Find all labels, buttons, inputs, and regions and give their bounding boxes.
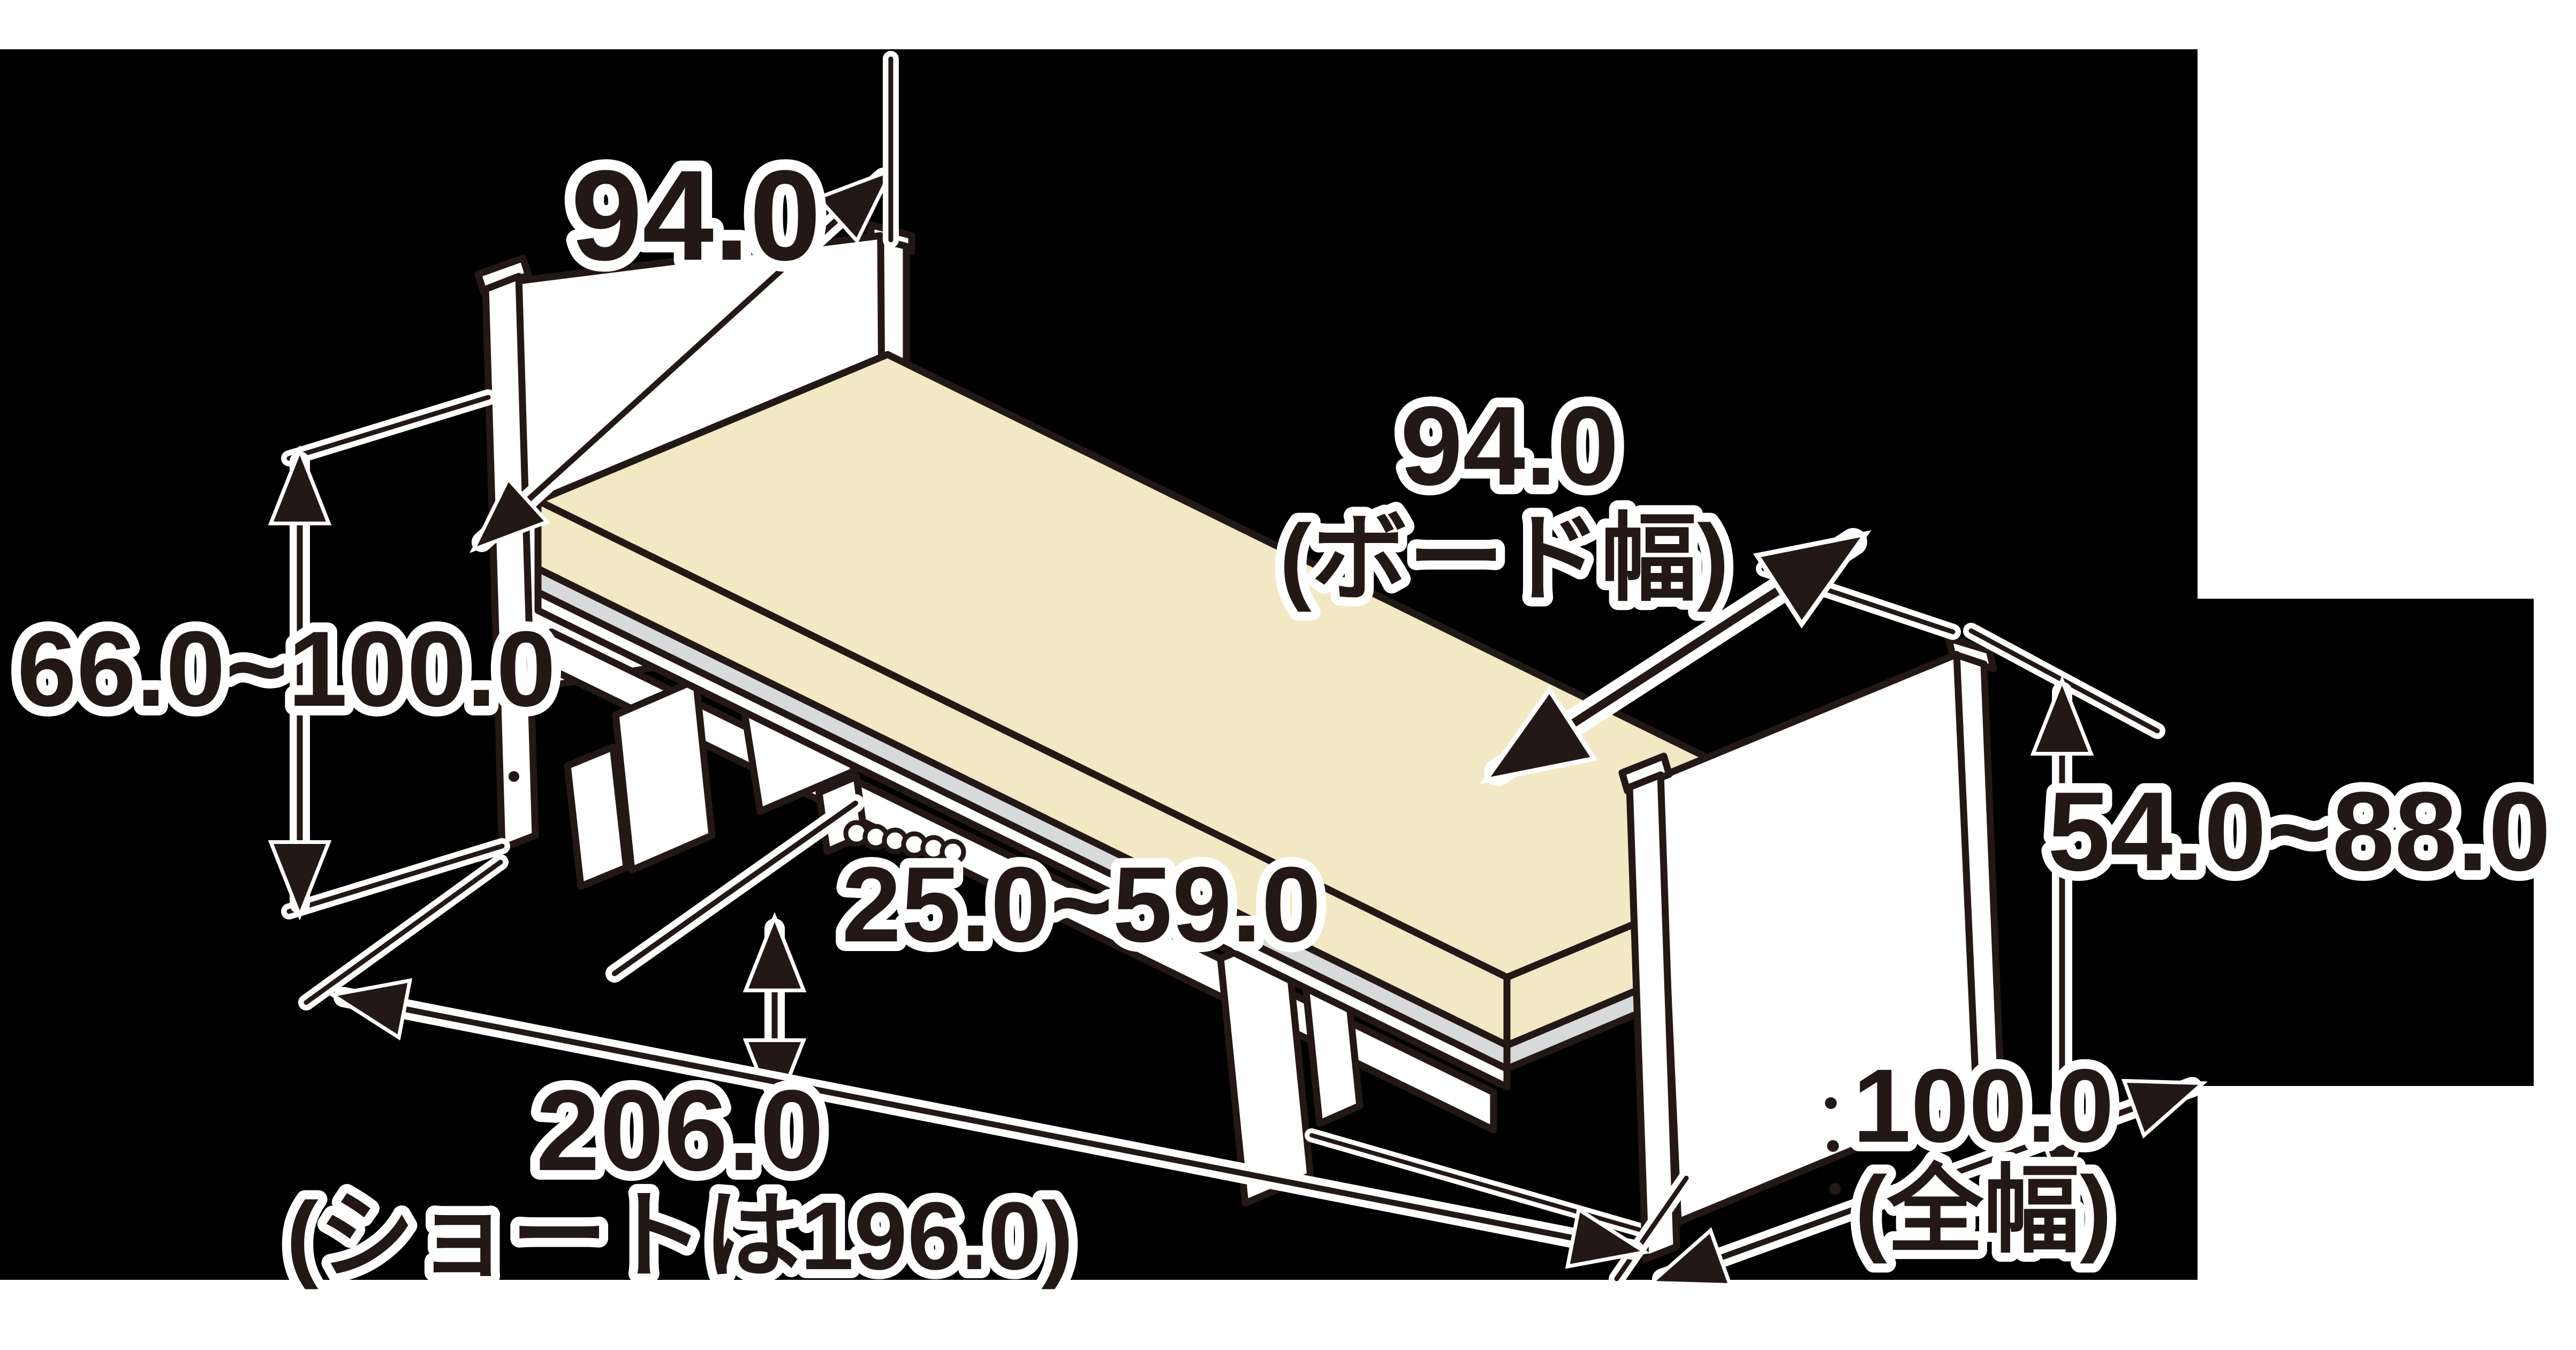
label-headboard-width: 94.0 bbox=[571, 144, 821, 287]
bed-dimension-diagram: 94.0 66.0~100.0 94.0 (ボード幅) 25.0~59.0 54… bbox=[0, 0, 2576, 1350]
label-overall-width-value: 100.0 bbox=[1853, 1047, 2114, 1164]
diagram-stage: 94.0 66.0~100.0 94.0 (ボード幅) 25.0~59.0 54… bbox=[0, 0, 2576, 1350]
headboard-bolt bbox=[509, 771, 519, 782]
label-length-value: 206.0 bbox=[536, 1066, 824, 1195]
white-margin-top bbox=[0, 0, 2576, 49]
label-board-width-caption: (ボード幅) bbox=[1279, 505, 1729, 613]
label-footboard-height-range: 54.0~88.0 bbox=[2048, 768, 2551, 894]
label-headboard-height-range: 66.0~100.0 bbox=[17, 609, 556, 729]
white-margin-bottom bbox=[0, 1280, 2576, 1350]
head-leg-rear bbox=[567, 747, 626, 886]
head-leg-box bbox=[616, 680, 712, 870]
label-length-caption: (ショートは196.0) bbox=[286, 1182, 1073, 1290]
label-under-bed-clearance: 25.0~59.0 bbox=[842, 845, 1321, 964]
white-block-top-right bbox=[2198, 0, 2576, 599]
label-overall-width-caption: (全幅) bbox=[1855, 1157, 2112, 1264]
label-board-width-value: 94.0 bbox=[1400, 383, 1619, 509]
